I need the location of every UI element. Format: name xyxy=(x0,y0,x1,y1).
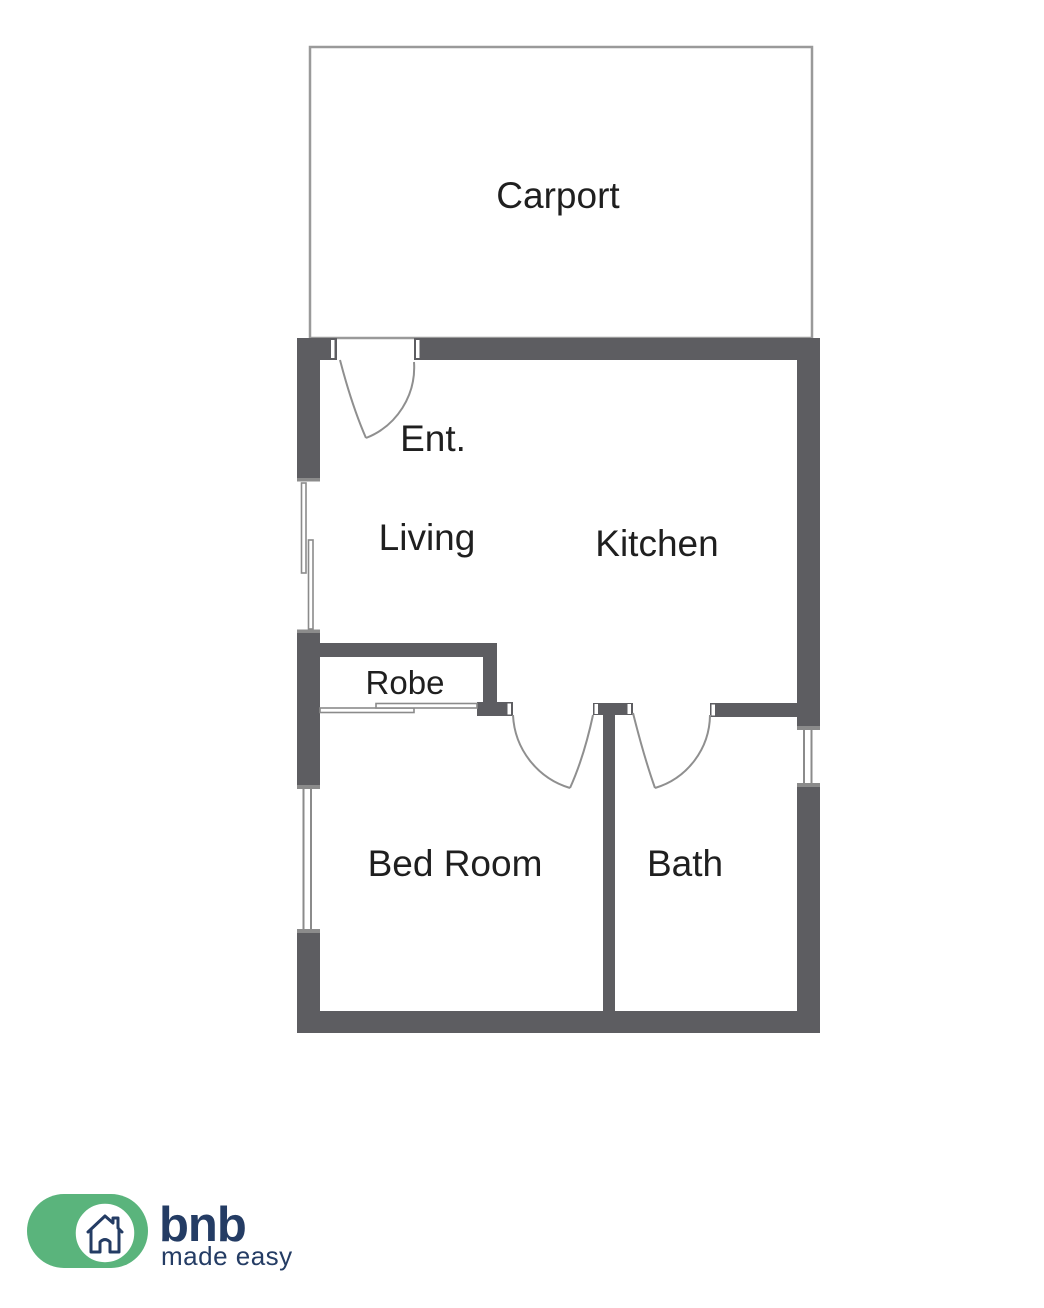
left-wall-upper xyxy=(297,338,320,478)
bedroom-window-cap-bottom xyxy=(297,929,320,933)
robe-label: Robe xyxy=(366,664,445,701)
bath-label: Bath xyxy=(647,843,723,884)
robe-right-wall xyxy=(483,643,497,712)
entrance-label: Ent. xyxy=(400,418,466,459)
bedroom-window-opening xyxy=(297,785,320,933)
bath-door xyxy=(633,713,710,788)
bedroom-window-cap-top xyxy=(297,785,320,789)
bath-door-leaf xyxy=(633,713,655,788)
living-window-cap-top xyxy=(297,478,320,482)
bedroom-door xyxy=(513,715,593,788)
living-window-cap-bottom xyxy=(297,630,320,634)
bed-bath-divider-wall xyxy=(603,703,615,1011)
carport-area: Carport xyxy=(310,47,812,338)
bottom-wall xyxy=(297,1011,820,1033)
bedroom-door-leaf xyxy=(570,715,593,788)
logo-circle xyxy=(74,1202,136,1264)
living-window-panel-2 xyxy=(309,540,314,629)
left-wall-middle xyxy=(297,633,320,785)
robe-top-wall xyxy=(320,643,497,657)
floorplan-page: Carport xyxy=(0,0,1044,1308)
kitchen-label: Kitchen xyxy=(595,523,718,564)
bedroom-door-swing-arc xyxy=(513,715,570,788)
entrance-door-leaf xyxy=(340,360,366,438)
bath-door-swing-arc xyxy=(655,715,710,788)
bath-window-cap-bottom xyxy=(797,783,820,787)
bath-top-wall xyxy=(710,703,820,717)
carport-label: Carport xyxy=(496,175,620,216)
robe-sliding-door xyxy=(320,704,477,713)
bedroom-jamb-left xyxy=(508,704,512,715)
living-window xyxy=(297,478,320,633)
bedroom-label: Bed Room xyxy=(368,843,543,884)
brand-logo: bnb made easy xyxy=(27,1194,293,1271)
doors xyxy=(340,360,710,788)
bath-window-opening xyxy=(797,726,820,787)
bath-window-cap-top xyxy=(797,726,820,730)
bath-jamb-left xyxy=(628,704,632,714)
entrance-jamb-right xyxy=(416,340,420,358)
top-wall-main xyxy=(414,338,820,360)
bath-jamb-right xyxy=(712,705,716,716)
living-label: Living xyxy=(379,517,476,558)
living-window-panel-1 xyxy=(302,483,307,573)
robe-slider-panel-2 xyxy=(376,704,477,709)
right-wall-lower xyxy=(797,787,820,1033)
right-wall-upper xyxy=(797,338,820,726)
bath-window xyxy=(797,726,820,787)
bedroom-window xyxy=(297,785,320,933)
floorplan-drawing: Carport xyxy=(0,0,1044,1308)
entrance-jamb-left xyxy=(331,340,335,358)
bedroom-jamb-right xyxy=(595,704,599,714)
logo-tagline-text: made easy xyxy=(161,1241,293,1271)
